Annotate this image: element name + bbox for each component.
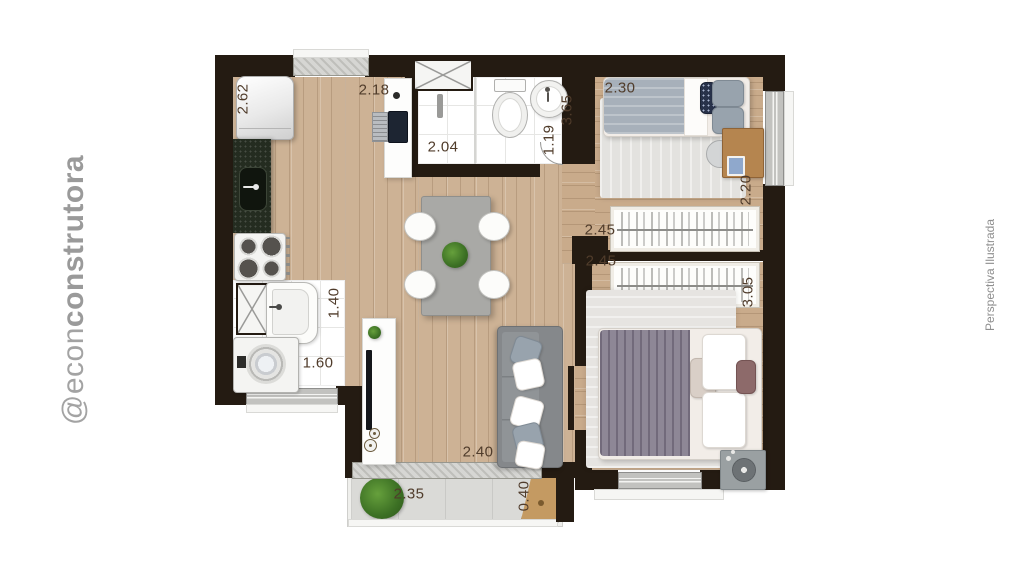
wall-balcony-right — [556, 466, 574, 522]
dim-balcony-depth: 0.40 — [516, 481, 533, 512]
dining-chair-3 — [478, 212, 510, 241]
dim-bath-depth: 1.19 — [541, 125, 558, 156]
table-plant-icon — [442, 242, 468, 268]
shower-head-icon — [437, 94, 443, 118]
kitchen-faucet-dot — [253, 184, 259, 190]
dim-kitchen-depth: 2.62 — [235, 84, 252, 115]
lamp-icon — [732, 458, 756, 482]
balcony-faucet-icon — [538, 500, 544, 506]
bedroom1-door-leaf — [568, 366, 574, 430]
wall-bathroom-bottom — [405, 164, 540, 177]
dim-laundry-depth: 1.40 — [326, 288, 343, 319]
dim-bedroom2-width: 2.30 — [605, 80, 636, 97]
bedroom2-door-leaf — [580, 83, 586, 145]
pillow-gray-top — [712, 80, 744, 107]
dim-living-depth: 3.65 — [559, 95, 576, 126]
pillow-maroon — [736, 360, 756, 394]
cup-icon — [393, 92, 400, 99]
brand-handle-suffix: construtora — [57, 155, 90, 327]
washing-machine-icon — [233, 337, 299, 393]
dim-hall-width-bottom: 2.45 — [586, 253, 617, 270]
laundry-window-sill — [246, 404, 338, 413]
speaker-icon-2 — [364, 439, 377, 452]
tv-icon — [366, 350, 372, 430]
laundry-shaft — [236, 283, 268, 335]
washbasin-faucet-icon — [547, 92, 549, 102]
bedroom2-wardrobe — [610, 206, 760, 252]
notebook-icon — [727, 156, 745, 176]
speaker-icon-1 — [369, 428, 380, 439]
sofa-pillow-2 — [511, 357, 545, 391]
perspective-note: Perspectiva Ilustrada — [983, 185, 997, 365]
bed-knit-blanket — [600, 330, 690, 456]
kitchen-window-sill — [293, 49, 369, 58]
stove-knobs — [286, 237, 290, 275]
laptop-icon — [388, 111, 408, 143]
brand-handle-prefix: @econ — [57, 327, 90, 425]
dim-hall-width-top: 2.45 — [585, 222, 616, 239]
bedroom2-window-sill — [784, 91, 794, 186]
dining-chair-4 — [478, 270, 510, 299]
dim-bedroom2-depth: 2.20 — [738, 175, 755, 206]
keyboard-icon — [372, 112, 388, 142]
nightstand-item-dot1 — [726, 456, 731, 461]
laundry-faucet-icon — [269, 306, 277, 308]
dim-bedroom1-depth: 3.05 — [740, 277, 757, 308]
wall-bedroom1-bottom-left — [575, 470, 618, 490]
bedroom1-window — [618, 472, 702, 489]
dim-living-width: 2.40 — [463, 444, 494, 461]
laundry-tank — [266, 282, 318, 344]
dim-balcony-width: 2.35 — [394, 486, 425, 503]
floor-plan-canvas: @econconstrutora Perspectiva Ilustrada — [0, 0, 1024, 575]
dim-laundry-width: 1.60 — [303, 355, 334, 372]
bathroom-shaft — [413, 59, 473, 91]
tv-rack-plant-icon — [368, 326, 381, 339]
shower-glass — [474, 77, 476, 164]
kitchen-window — [293, 57, 369, 76]
wall-left — [215, 55, 233, 405]
balcony-rail — [348, 519, 558, 527]
dim-kitchen-width: 2.18 — [359, 82, 390, 99]
nightstand-item-dot2 — [731, 450, 735, 454]
bedroom2-window — [765, 91, 784, 186]
dining-chair-2 — [404, 270, 436, 299]
wall-right-bottom — [763, 184, 785, 490]
toilet-icon — [492, 92, 528, 138]
dim-bath-width: 2.04 — [428, 139, 459, 156]
stove-icon — [234, 233, 286, 281]
toilet-tank — [494, 79, 526, 92]
pillow-white-bottom — [702, 392, 746, 448]
sofa-pillow-5 — [514, 440, 546, 470]
wall-right-top — [763, 55, 785, 91]
brand-watermark: @econconstrutora — [57, 120, 91, 460]
bedroom1-window-sill — [594, 489, 724, 500]
dining-chair-1 — [404, 212, 436, 241]
